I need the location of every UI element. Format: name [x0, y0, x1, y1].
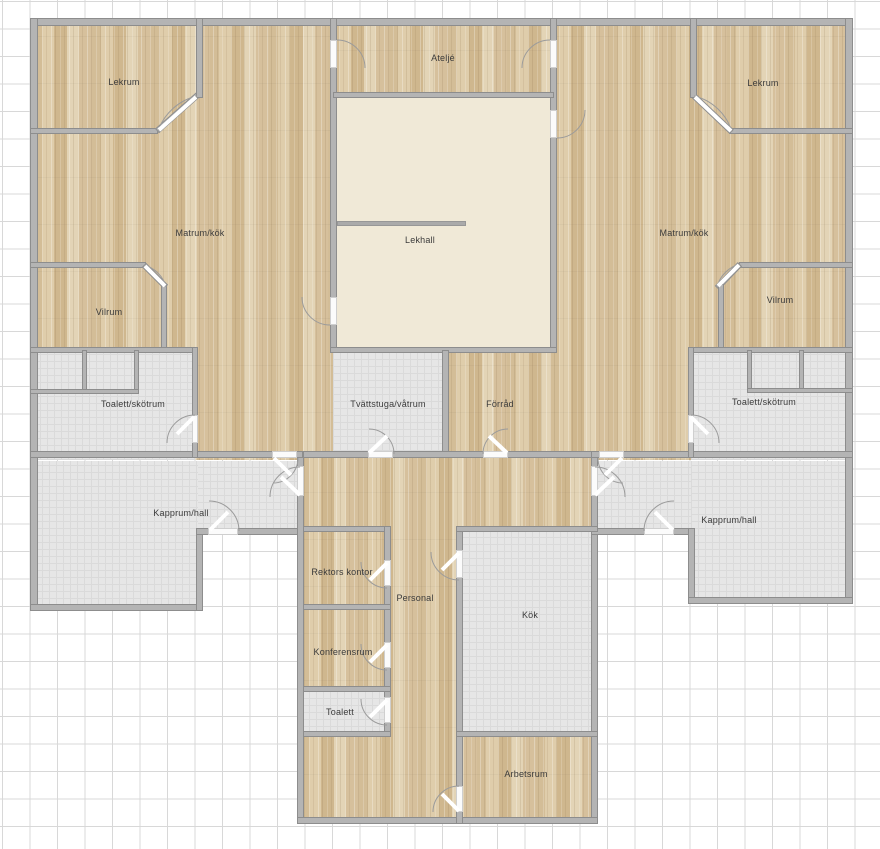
wall-segment [30, 347, 198, 353]
door[interactable] [384, 642, 391, 668]
door-exterior[interactable] [208, 528, 238, 535]
room-label-toalett: Toalett [326, 707, 354, 717]
room-label-lekrum-left: Lekrum [108, 77, 139, 87]
room-label-konferensrum: Konferensrum [314, 647, 373, 657]
door[interactable] [368, 451, 393, 458]
wall-segment [303, 526, 391, 532]
room-label-kapprum-hall-left: Kapprum/hall [153, 508, 208, 518]
wall-segment [729, 128, 853, 134]
room-label-matrum-kok-right: Matrum/kök [659, 228, 708, 238]
wall-segment [303, 731, 391, 737]
wall-stall [134, 350, 139, 392]
door[interactable] [688, 415, 694, 443]
wall-segment [297, 455, 304, 824]
wall-segment [718, 284, 724, 352]
wall-segment [161, 284, 167, 352]
wall-partition [337, 221, 466, 226]
room-label-vilrum-right: Vilrum [767, 295, 794, 305]
door[interactable] [550, 110, 557, 138]
wall-segment [739, 262, 853, 268]
door[interactable] [591, 466, 598, 496]
door-exterior[interactable] [644, 528, 674, 535]
room-label-toalett-skotrum-right: Toalett/skötrum [732, 397, 796, 407]
wall-segment [30, 262, 146, 268]
wall-segment [688, 528, 695, 604]
wall-stall [30, 389, 139, 394]
wall-segment [333, 92, 554, 98]
room-kapprum-hall-left-leg[interactable] [35, 461, 198, 606]
room-label-kok: Kök [522, 610, 538, 620]
door[interactable] [330, 40, 337, 68]
wall-segment [303, 604, 391, 610]
wall-segment [845, 18, 853, 604]
door[interactable] [330, 297, 337, 325]
wall-segment [456, 731, 598, 737]
door[interactable] [297, 466, 304, 496]
door[interactable] [384, 560, 391, 586]
wall-stall [747, 350, 752, 392]
room-label-arbetsrum: Arbetsrum [504, 769, 547, 779]
wall-segment [550, 18, 557, 353]
door[interactable] [456, 786, 463, 812]
room-label-vilrum-left: Vilrum [96, 307, 123, 317]
wall-stall [82, 350, 87, 392]
wall-segment [196, 18, 203, 98]
room-label-lekhall: Lekhall [405, 235, 435, 245]
room-label-lekrum-right: Lekrum [747, 78, 778, 88]
wall-segment [30, 128, 158, 134]
room-kok[interactable] [462, 530, 595, 734]
room-label-personal: Personal [396, 593, 433, 603]
wall-segment [591, 528, 695, 535]
wall-stall [799, 350, 804, 392]
wall-segment [196, 531, 203, 611]
wall-segment [30, 451, 303, 458]
door[interactable] [483, 451, 508, 458]
room-label-rektors-kontor: Rektors kontor [311, 567, 372, 577]
room-label-toalett-skotrum-left: Toalett/skötrum [101, 399, 165, 409]
wall-segment [456, 526, 598, 532]
room-label-matrum-kok-left: Matrum/kök [175, 228, 224, 238]
wall-segment [297, 817, 598, 824]
door[interactable] [384, 697, 391, 723]
wall-segment [30, 604, 203, 611]
wall-segment [303, 451, 595, 458]
room-label-tvattstuga-vatrum: Tvättstuga/våtrum [350, 399, 425, 409]
wall-segment [30, 18, 38, 611]
wall-segment [591, 451, 853, 458]
wall-segment [690, 18, 697, 98]
wall-segment [30, 18, 853, 26]
wall-segment [591, 455, 598, 824]
wall-stall [747, 388, 853, 393]
room-label-kapprum-hall-right: Kapprum/hall [701, 515, 756, 525]
door[interactable] [550, 40, 557, 68]
room-kapprum-hall-right-leg[interactable] [691, 461, 848, 599]
wall-segment [303, 686, 391, 692]
room-label-forrad: Förråd [486, 399, 514, 409]
wall-segment [688, 347, 853, 353]
door[interactable] [272, 451, 297, 458]
room-label-atelje: Ateljé [431, 53, 455, 63]
floor-plan-canvas: Lekrum Ateljé Lekrum Matrum/kök Lekhall … [0, 0, 880, 849]
door[interactable] [192, 415, 198, 443]
wall-segment [442, 350, 449, 457]
door[interactable] [456, 550, 463, 578]
door[interactable] [599, 451, 624, 458]
wall-segment [688, 597, 853, 604]
